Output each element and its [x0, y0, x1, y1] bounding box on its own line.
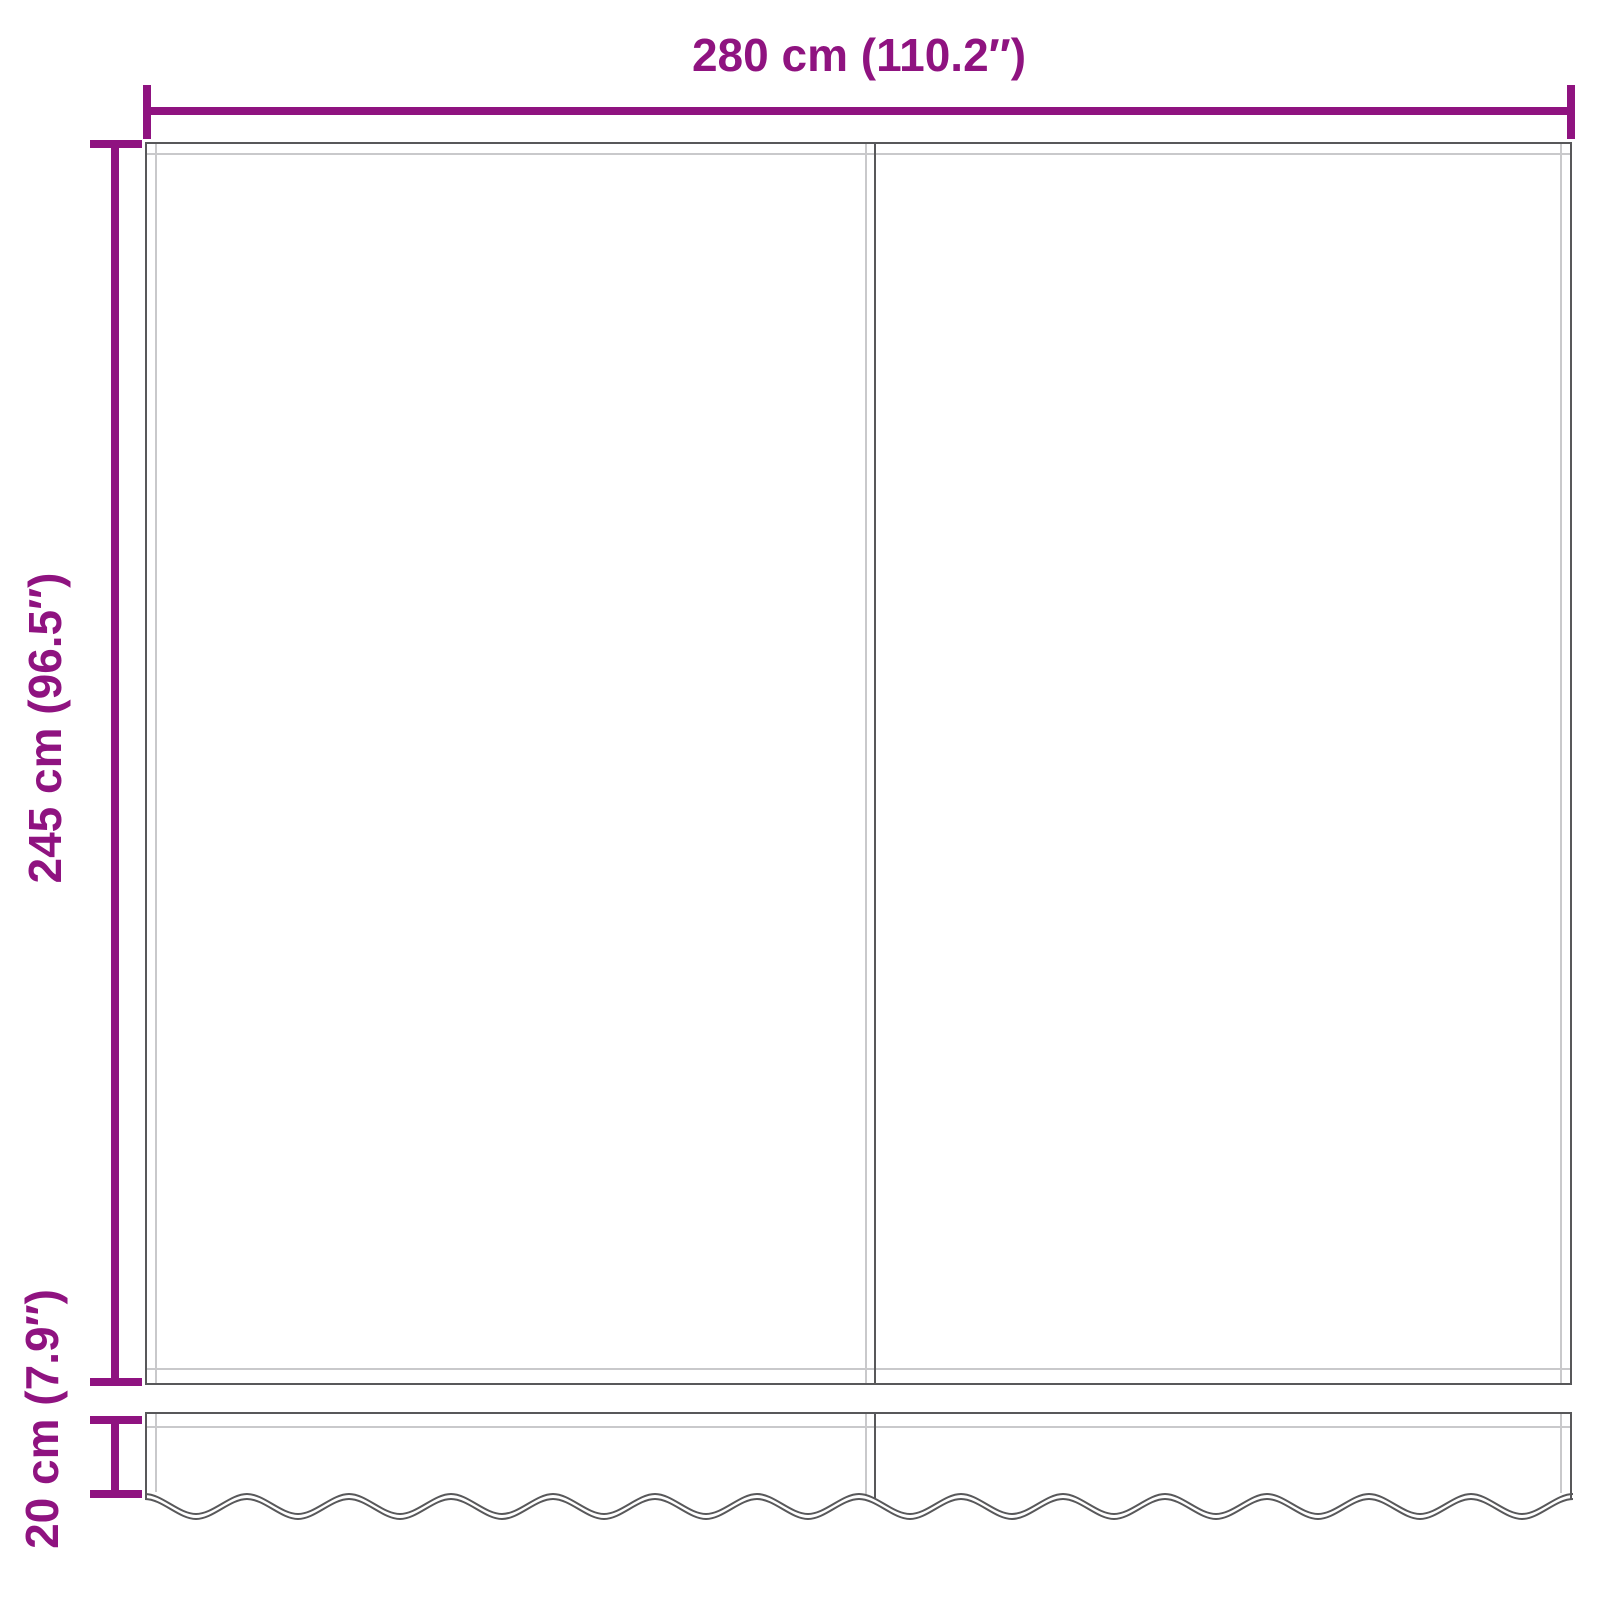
valance-scalloped-edge	[0, 0, 1600, 1600]
valance-wave-inner-line	[145, 1499, 1573, 1519]
valance-wave-outer-line	[145, 1494, 1573, 1514]
awning-fabric-dimension-diagram: 280 cm (110.2″) 245 cm (96.5″) 20 cm (7.…	[0, 0, 1600, 1600]
